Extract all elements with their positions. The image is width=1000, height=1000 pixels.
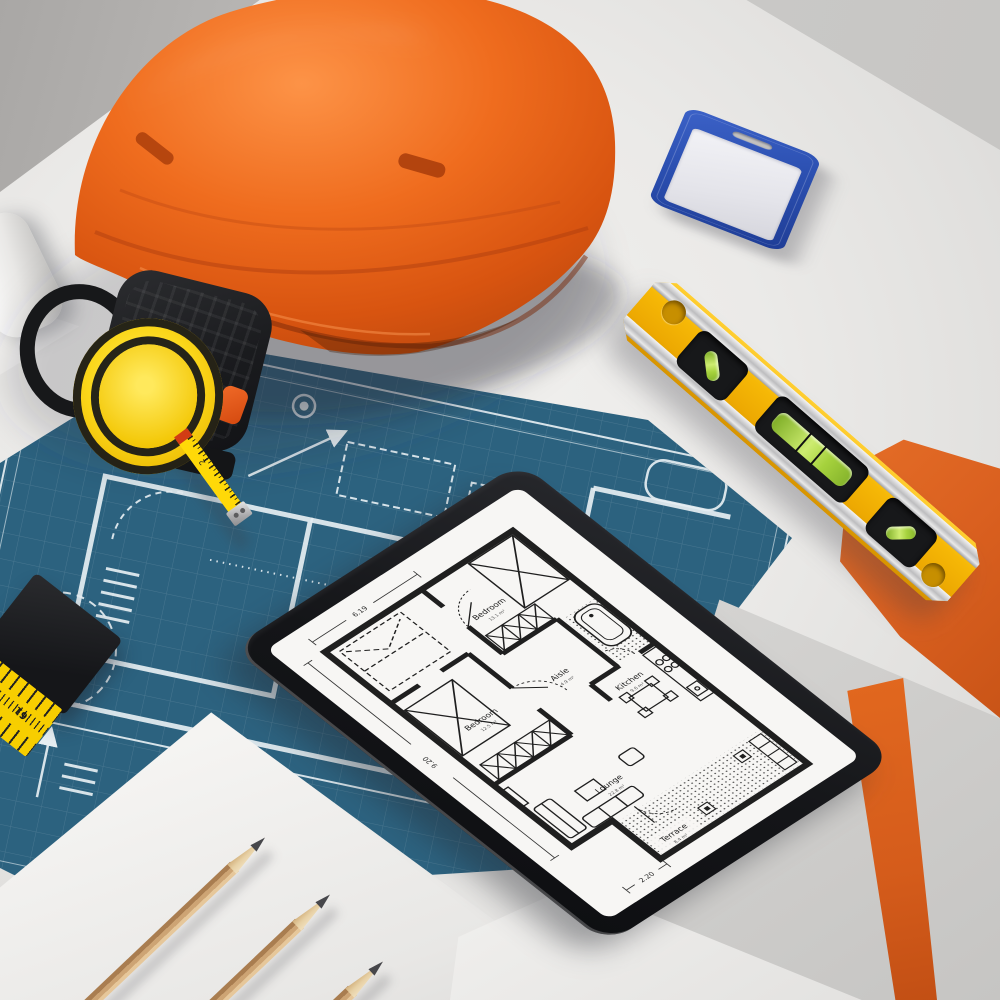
dimension-left: 9.20 [420,755,440,770]
dimension-top: 6.19 [350,604,370,618]
tape-measure [52,273,309,538]
construction-flatlay-scene: 2 19 61 [0,0,1000,1000]
tape-scale-number: 2 [197,457,207,466]
dimension-bottom: 2.20 [637,870,657,884]
level-vial-right [886,526,916,540]
level-vial-left [704,350,721,381]
ruler-number: 61 [13,704,31,722]
